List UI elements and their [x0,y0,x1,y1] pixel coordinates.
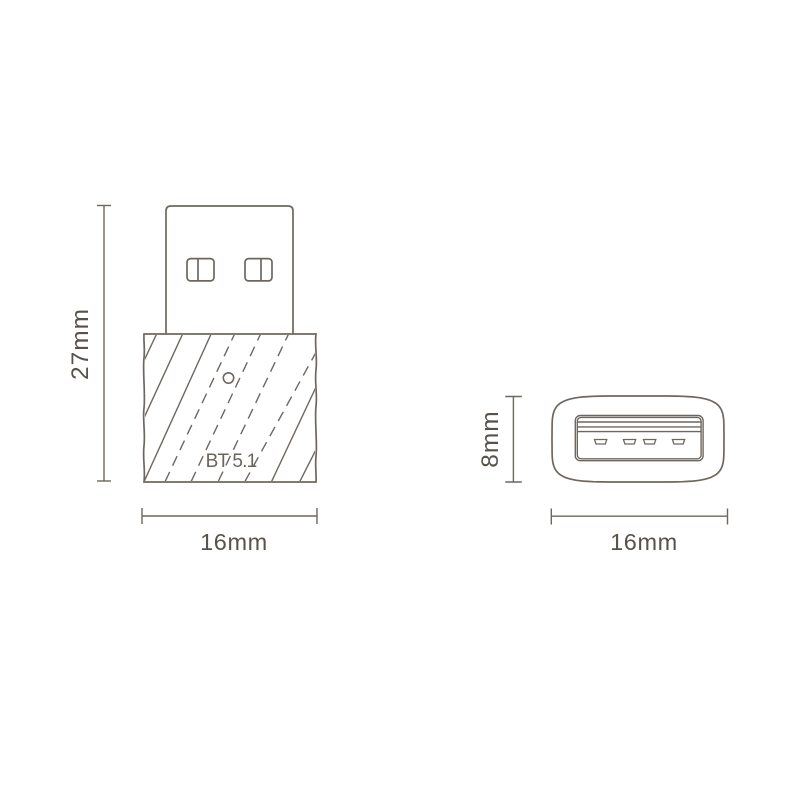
svg-text:16mm: 16mm [610,529,678,555]
svg-text:27mm: 27mm [67,308,94,380]
svg-text:16mm: 16mm [200,529,268,555]
svg-text:8mm: 8mm [477,410,504,467]
svg-text:BT 5.1: BT 5.1 [206,451,257,472]
